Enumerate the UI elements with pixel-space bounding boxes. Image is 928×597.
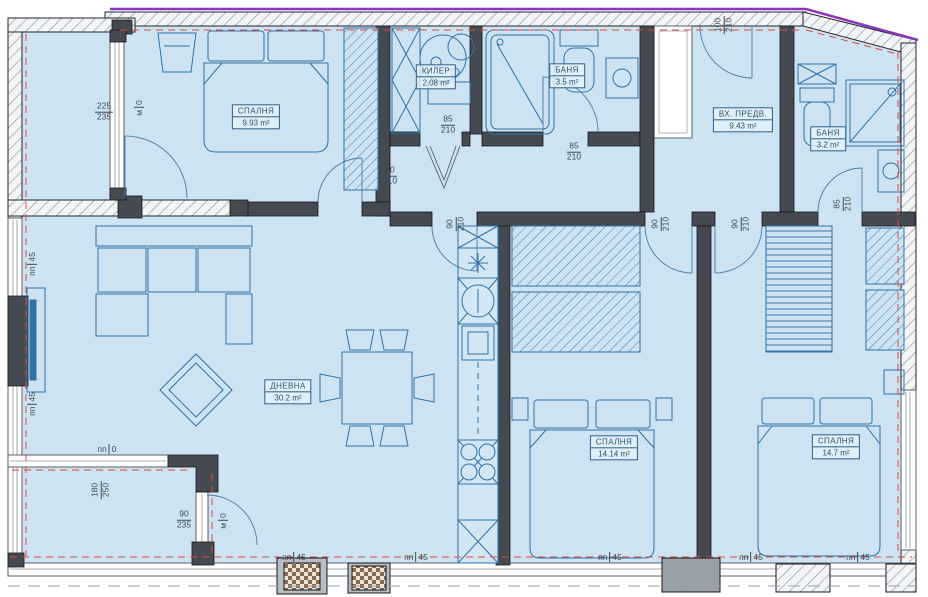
kitchen-counter xyxy=(458,226,498,563)
boiler-star-icon xyxy=(468,253,488,273)
wardrobe-1 xyxy=(344,28,378,190)
floor-plan: СПАЛНЯ 9.93 m² КИЛЕР 2.08 m² БАНЯ 3.5 m²… xyxy=(0,0,928,597)
floor-plan-drawing xyxy=(0,0,928,597)
